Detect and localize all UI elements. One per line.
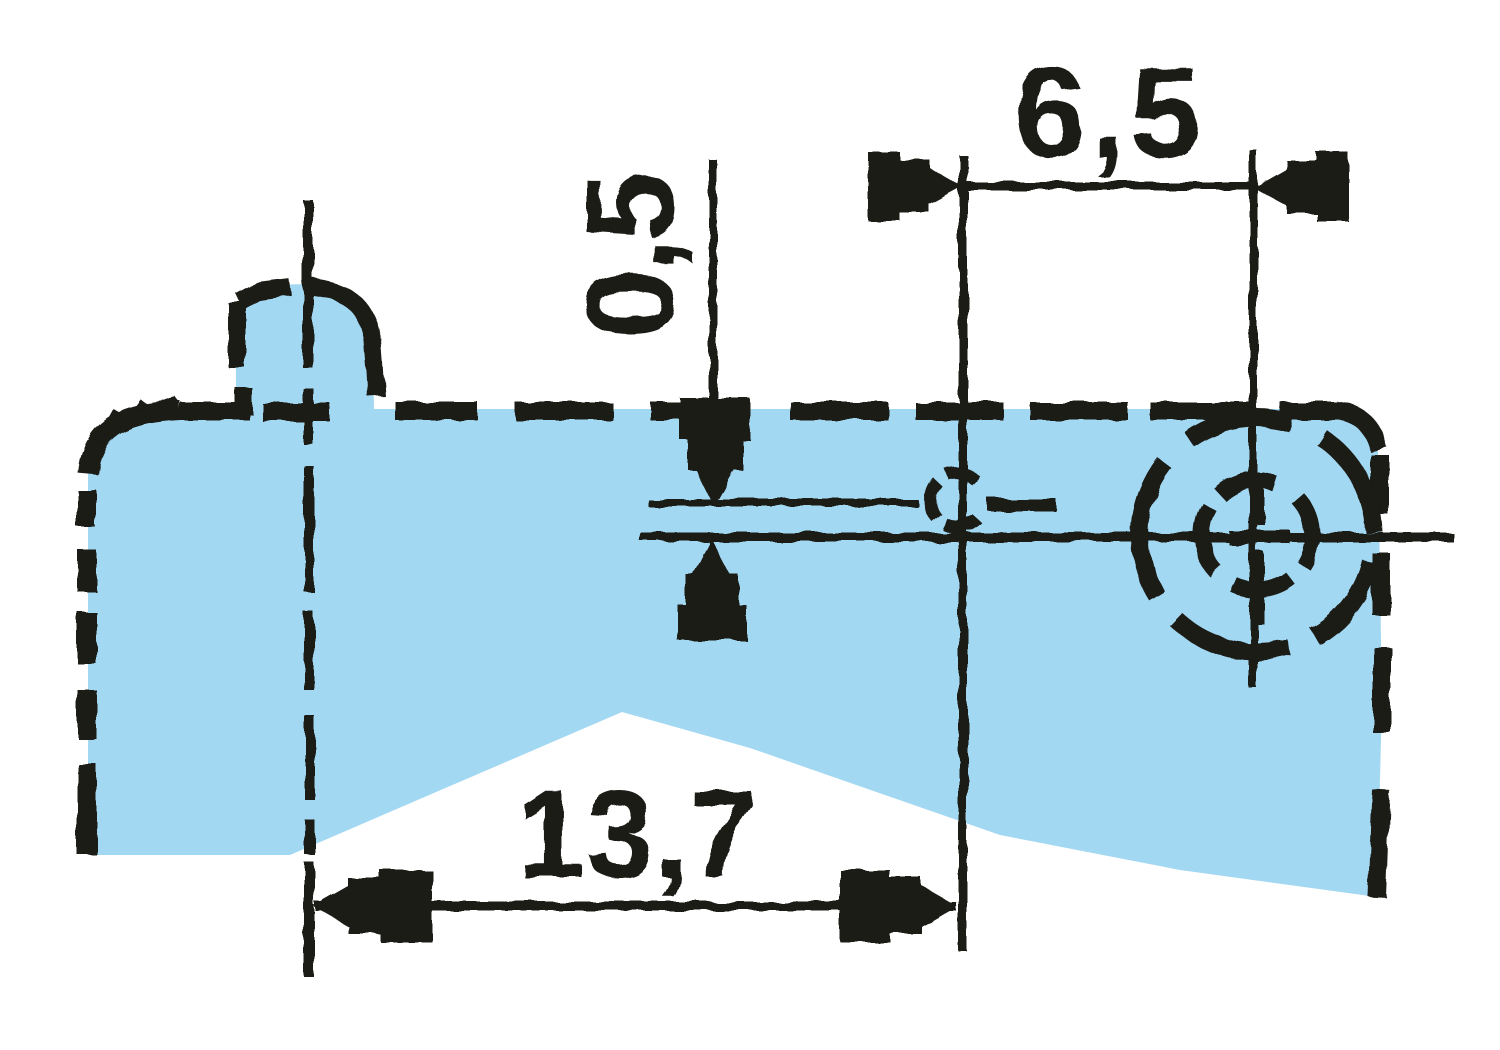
svg-text:13,7: 13,7	[516, 766, 757, 904]
svg-text:6,5: 6,5	[1014, 41, 1205, 185]
svg-text:0,5: 0,5	[560, 175, 701, 339]
